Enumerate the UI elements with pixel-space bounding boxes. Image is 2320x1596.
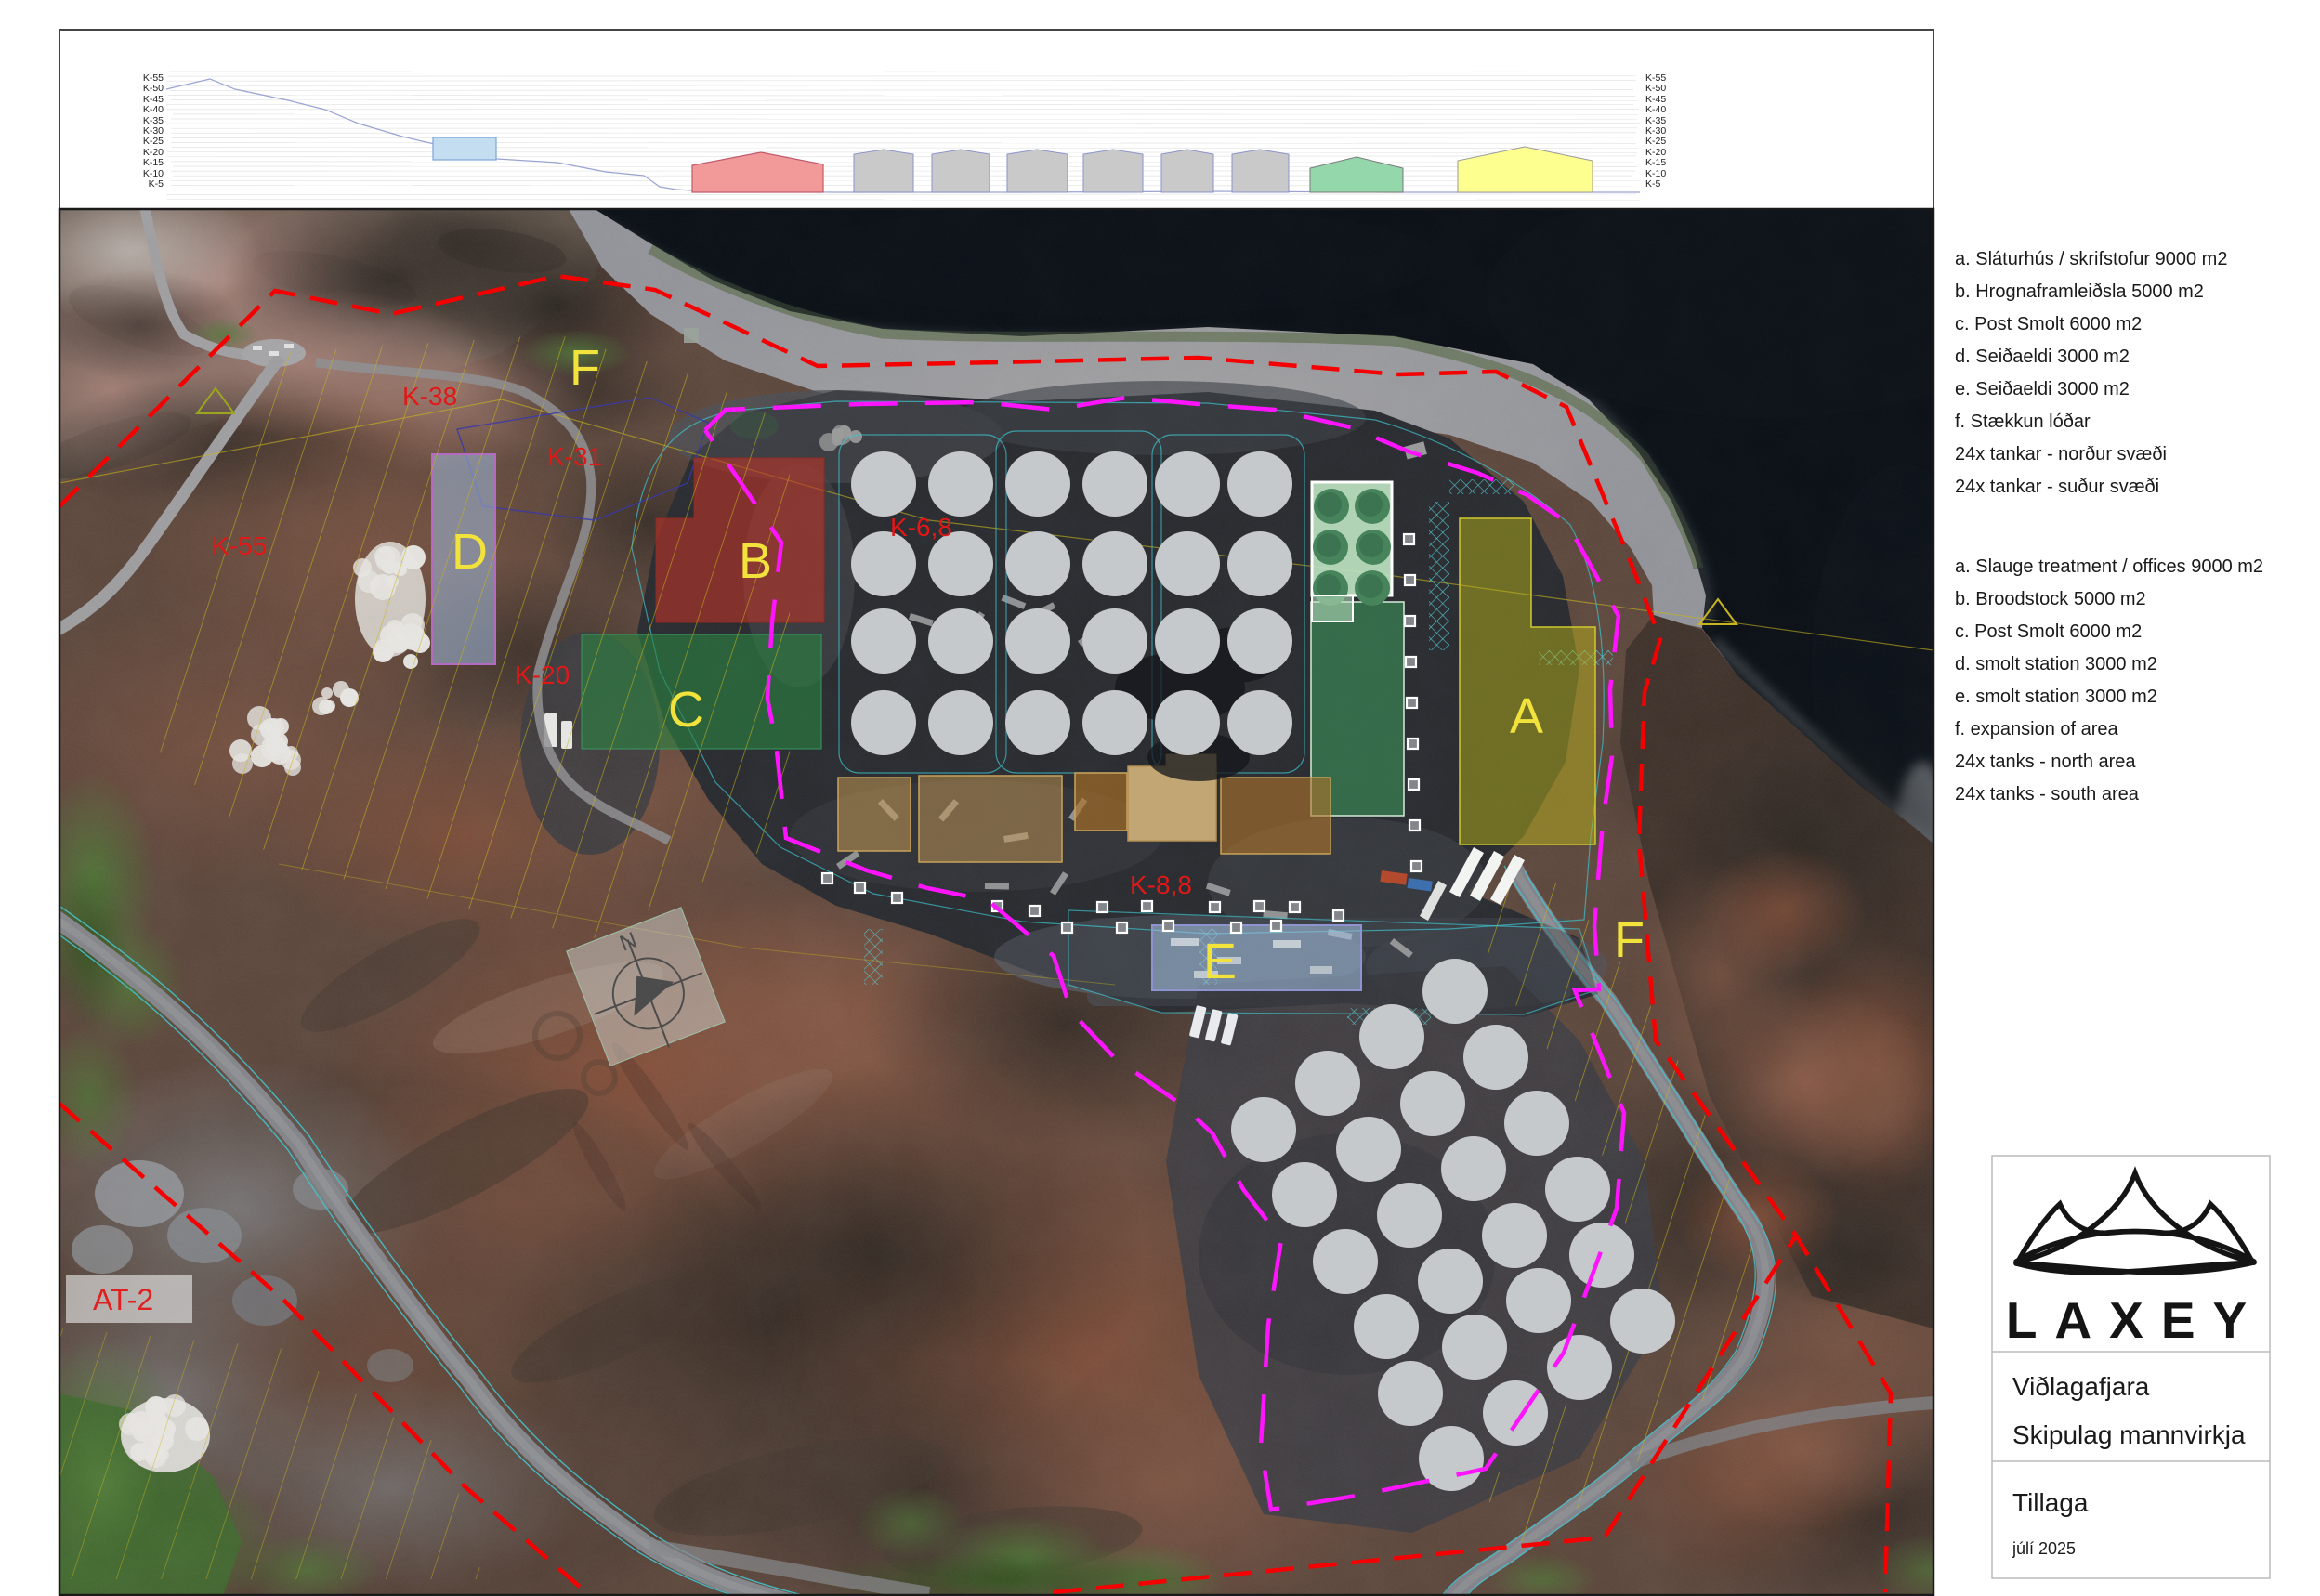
svg-text:K-40: K-40 (143, 104, 164, 115)
svg-text:b. Hrognaframleiðsla 5000 m2: b. Hrognaframleiðsla 5000 m2 (1955, 281, 2204, 302)
svg-text:e. smolt station 3000 m2: e. smolt station 3000 m2 (1955, 687, 2157, 707)
svg-text:K-15: K-15 (143, 157, 164, 168)
svg-text:Tillaga: Tillaga (2012, 1488, 2089, 1517)
svg-text:B: B (739, 533, 772, 589)
svg-text:a. Sláturhús / skrifstofur 900: a. Sláturhús / skrifstofur 9000 m2 (1955, 249, 2227, 269)
svg-text:K-5: K-5 (1645, 178, 1661, 190)
svg-text:d. Seiðaeldi 3000 m2: d. Seiðaeldi 3000 m2 (1955, 347, 2130, 367)
svg-text:c. Post Smolt 6000 m2: c. Post Smolt 6000 m2 (1955, 621, 2142, 642)
svg-text:D: D (452, 524, 488, 580)
svg-text:júlí 2025: júlí 2025 (2012, 1539, 2076, 1558)
svg-text:d. smolt station 3000 m2: d. smolt station 3000 m2 (1955, 654, 2157, 674)
svg-text:C: C (668, 682, 704, 738)
svg-text:b. Broodstock 5000 m2: b. Broodstock 5000 m2 (1955, 589, 2146, 609)
svg-text:K-15: K-15 (1645, 157, 1666, 168)
svg-text:K-5: K-5 (149, 178, 164, 190)
svg-text:24x tankar - suður svæði: 24x tankar - suður svæði (1955, 477, 2159, 497)
svg-text:K-38: K-38 (402, 382, 457, 411)
svg-text:f. expansion of area: f. expansion of area (1955, 719, 2119, 739)
svg-text:24x tankar - norður svæði: 24x tankar - norður svæði (1955, 444, 2167, 464)
svg-text:F: F (1614, 912, 1645, 968)
svg-text:AT-2: AT-2 (93, 1283, 153, 1316)
svg-text:LAXEY: LAXEY (2006, 1291, 2264, 1349)
svg-text:E: E (1203, 934, 1237, 989)
svg-text:K-55: K-55 (212, 531, 267, 560)
svg-text:a. Slauge treatment / offices: a. Slauge treatment / offices 9000 m2 (1955, 556, 2263, 577)
svg-text:Viðlagafjara: Viðlagafjara (2012, 1372, 2150, 1401)
svg-text:f. Stækkun lóðar: f. Stækkun lóðar (1955, 412, 2091, 432)
svg-text:K-25: K-25 (143, 136, 164, 147)
svg-text:K-31: K-31 (547, 442, 602, 471)
svg-text:K-20: K-20 (515, 661, 570, 689)
svg-text:K-8,8: K-8,8 (1130, 870, 1192, 899)
svg-text:24x tanks - south area: 24x tanks - south area (1955, 784, 2140, 805)
svg-text:K-40: K-40 (1645, 104, 1666, 115)
svg-text:K-25: K-25 (1645, 136, 1666, 147)
svg-text:A: A (1510, 688, 1543, 744)
svg-text:e. Seiðaeldi 3000 m2: e. Seiðaeldi 3000 m2 (1955, 379, 2130, 399)
svg-text:c. Post Smolt 6000 m2: c. Post Smolt 6000 m2 (1955, 314, 2142, 334)
svg-text:K-50: K-50 (143, 83, 164, 94)
svg-text:Skipulag mannvirkja: Skipulag mannvirkja (2012, 1420, 2246, 1449)
svg-text:F: F (570, 340, 600, 396)
svg-text:K-50: K-50 (1645, 83, 1666, 94)
svg-text:K-6,8: K-6,8 (890, 513, 952, 542)
svg-text:24x tanks - north area: 24x tanks - north area (1955, 752, 2136, 772)
